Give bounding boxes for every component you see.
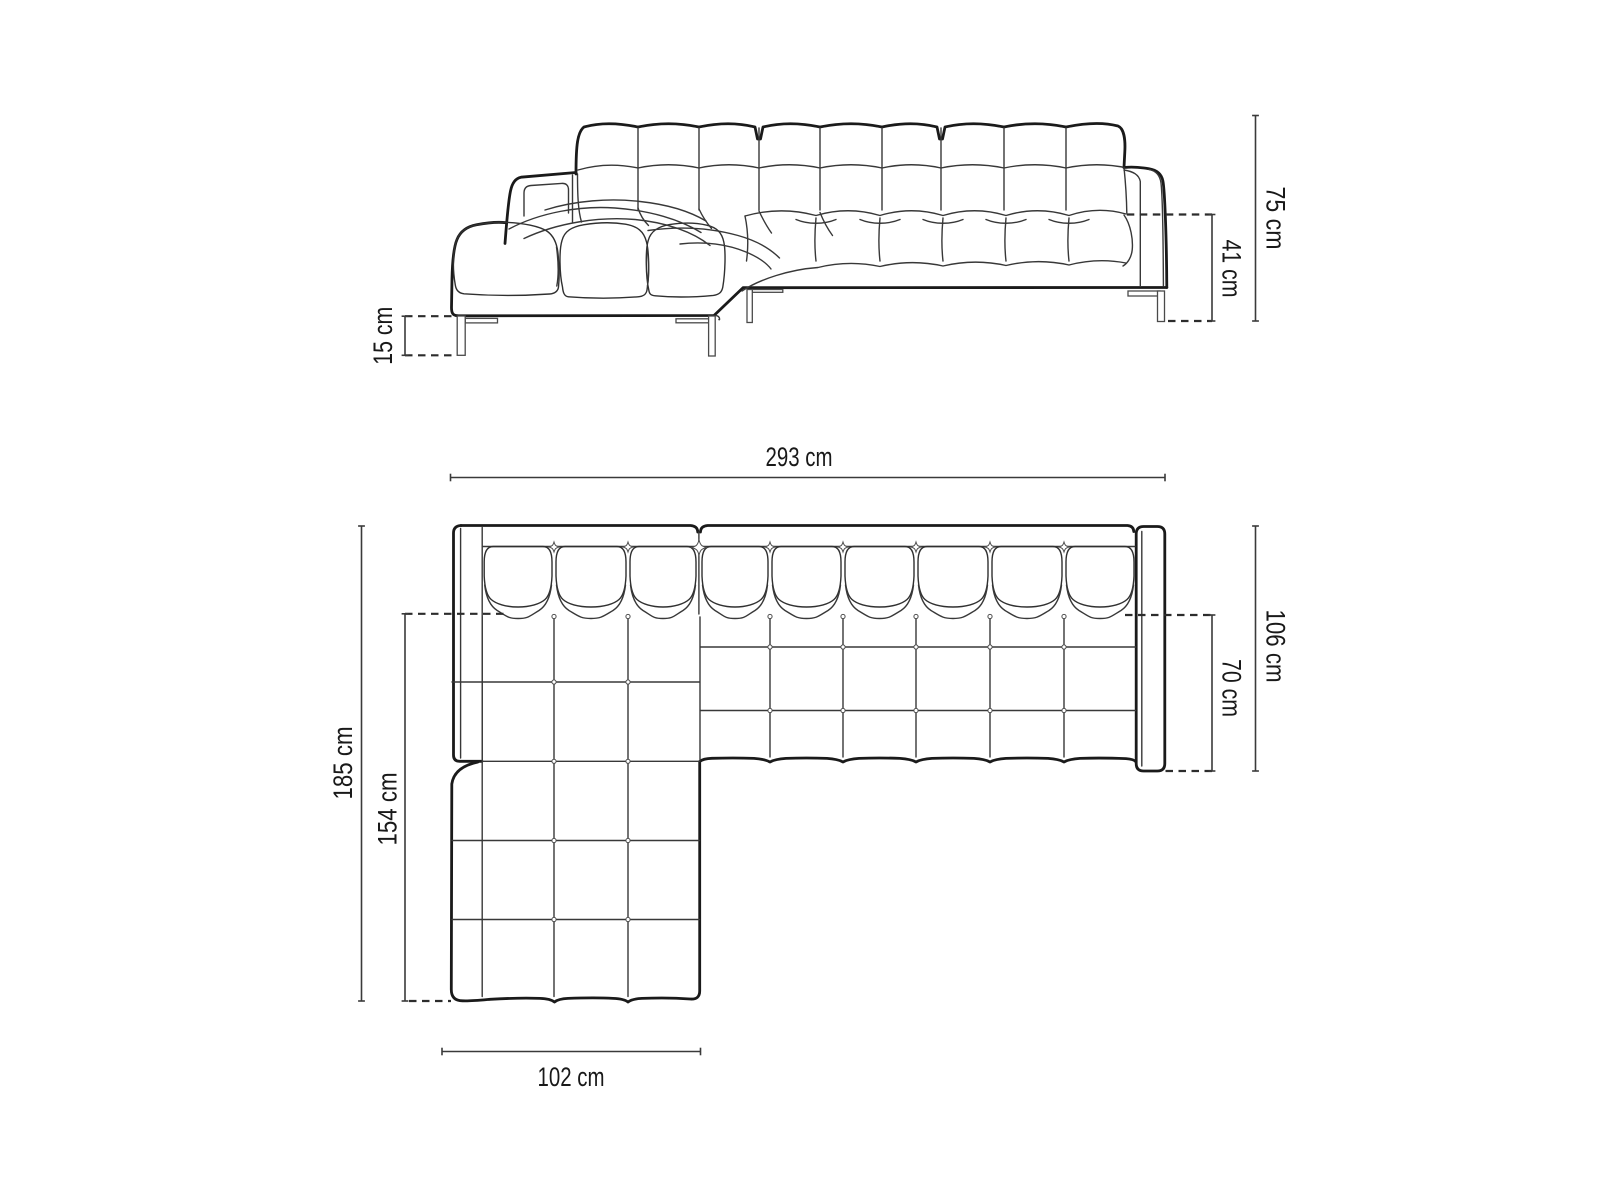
svg-text:102 cm: 102 cm bbox=[538, 1062, 605, 1092]
svg-text:41 cm: 41 cm bbox=[1217, 240, 1247, 298]
svg-text:15 cm: 15 cm bbox=[368, 307, 398, 365]
svg-text:70 cm: 70 cm bbox=[1217, 659, 1247, 717]
svg-text:185 cm: 185 cm bbox=[328, 727, 358, 800]
svg-text:75 cm: 75 cm bbox=[1261, 187, 1291, 250]
svg-text:293 cm: 293 cm bbox=[766, 442, 833, 472]
svg-text:106 cm: 106 cm bbox=[1261, 610, 1291, 683]
svg-text:154 cm: 154 cm bbox=[373, 773, 403, 846]
